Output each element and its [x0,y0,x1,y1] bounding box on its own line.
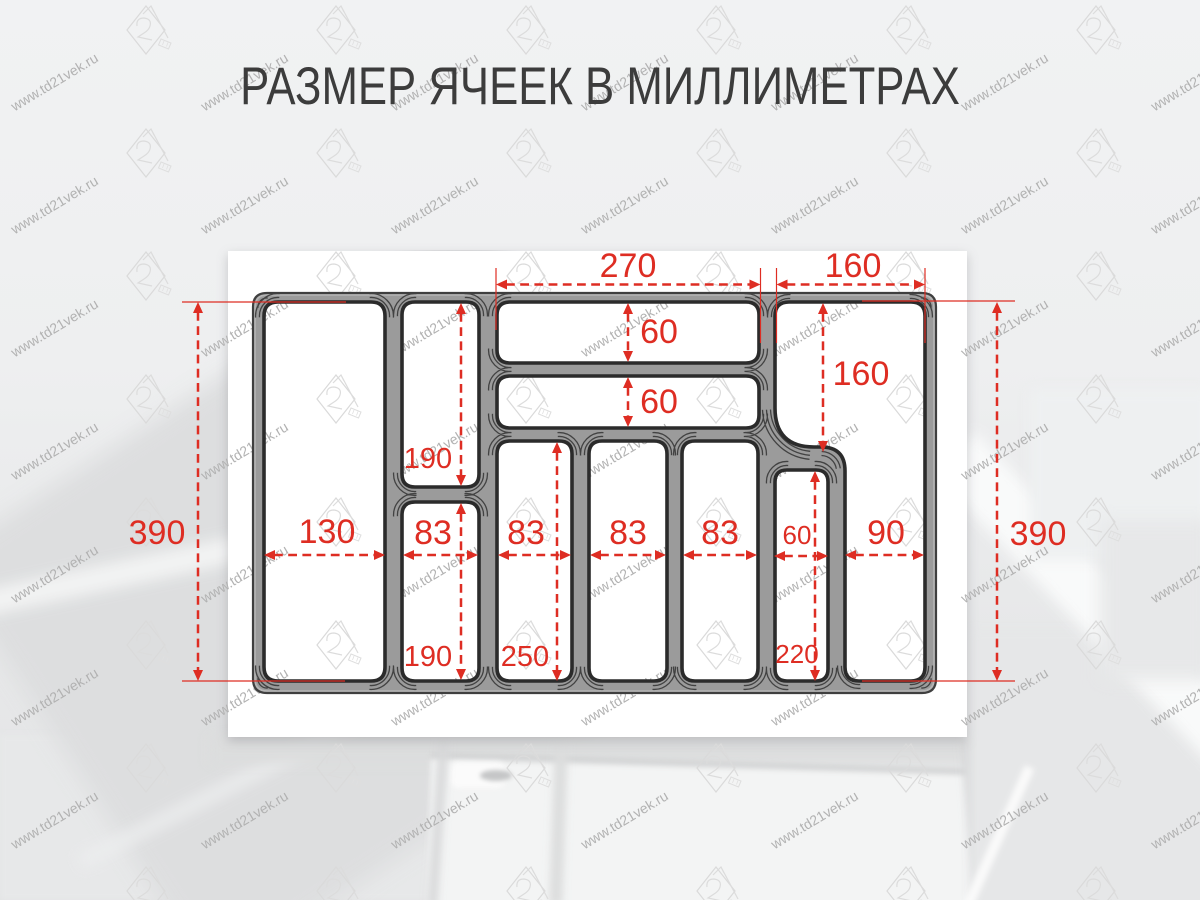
svg-text:160: 160 [833,355,890,393]
svg-text:390: 390 [129,514,186,552]
svg-text:60: 60 [783,520,812,550]
svg-text:270: 270 [600,247,657,285]
svg-text:60: 60 [640,313,678,351]
svg-text:250: 250 [501,641,549,673]
svg-text:160: 160 [825,247,882,285]
svg-text:190: 190 [404,443,452,475]
svg-text:83: 83 [414,514,452,552]
svg-text:190: 190 [404,641,452,673]
svg-text:83: 83 [609,514,647,552]
svg-text:60: 60 [640,383,678,421]
svg-text:130: 130 [299,513,356,551]
svg-text:83: 83 [701,514,739,552]
svg-text:83: 83 [507,514,545,552]
svg-text:220: 220 [775,639,818,669]
svg-text:90: 90 [867,514,905,552]
svg-text:390: 390 [1010,515,1067,553]
